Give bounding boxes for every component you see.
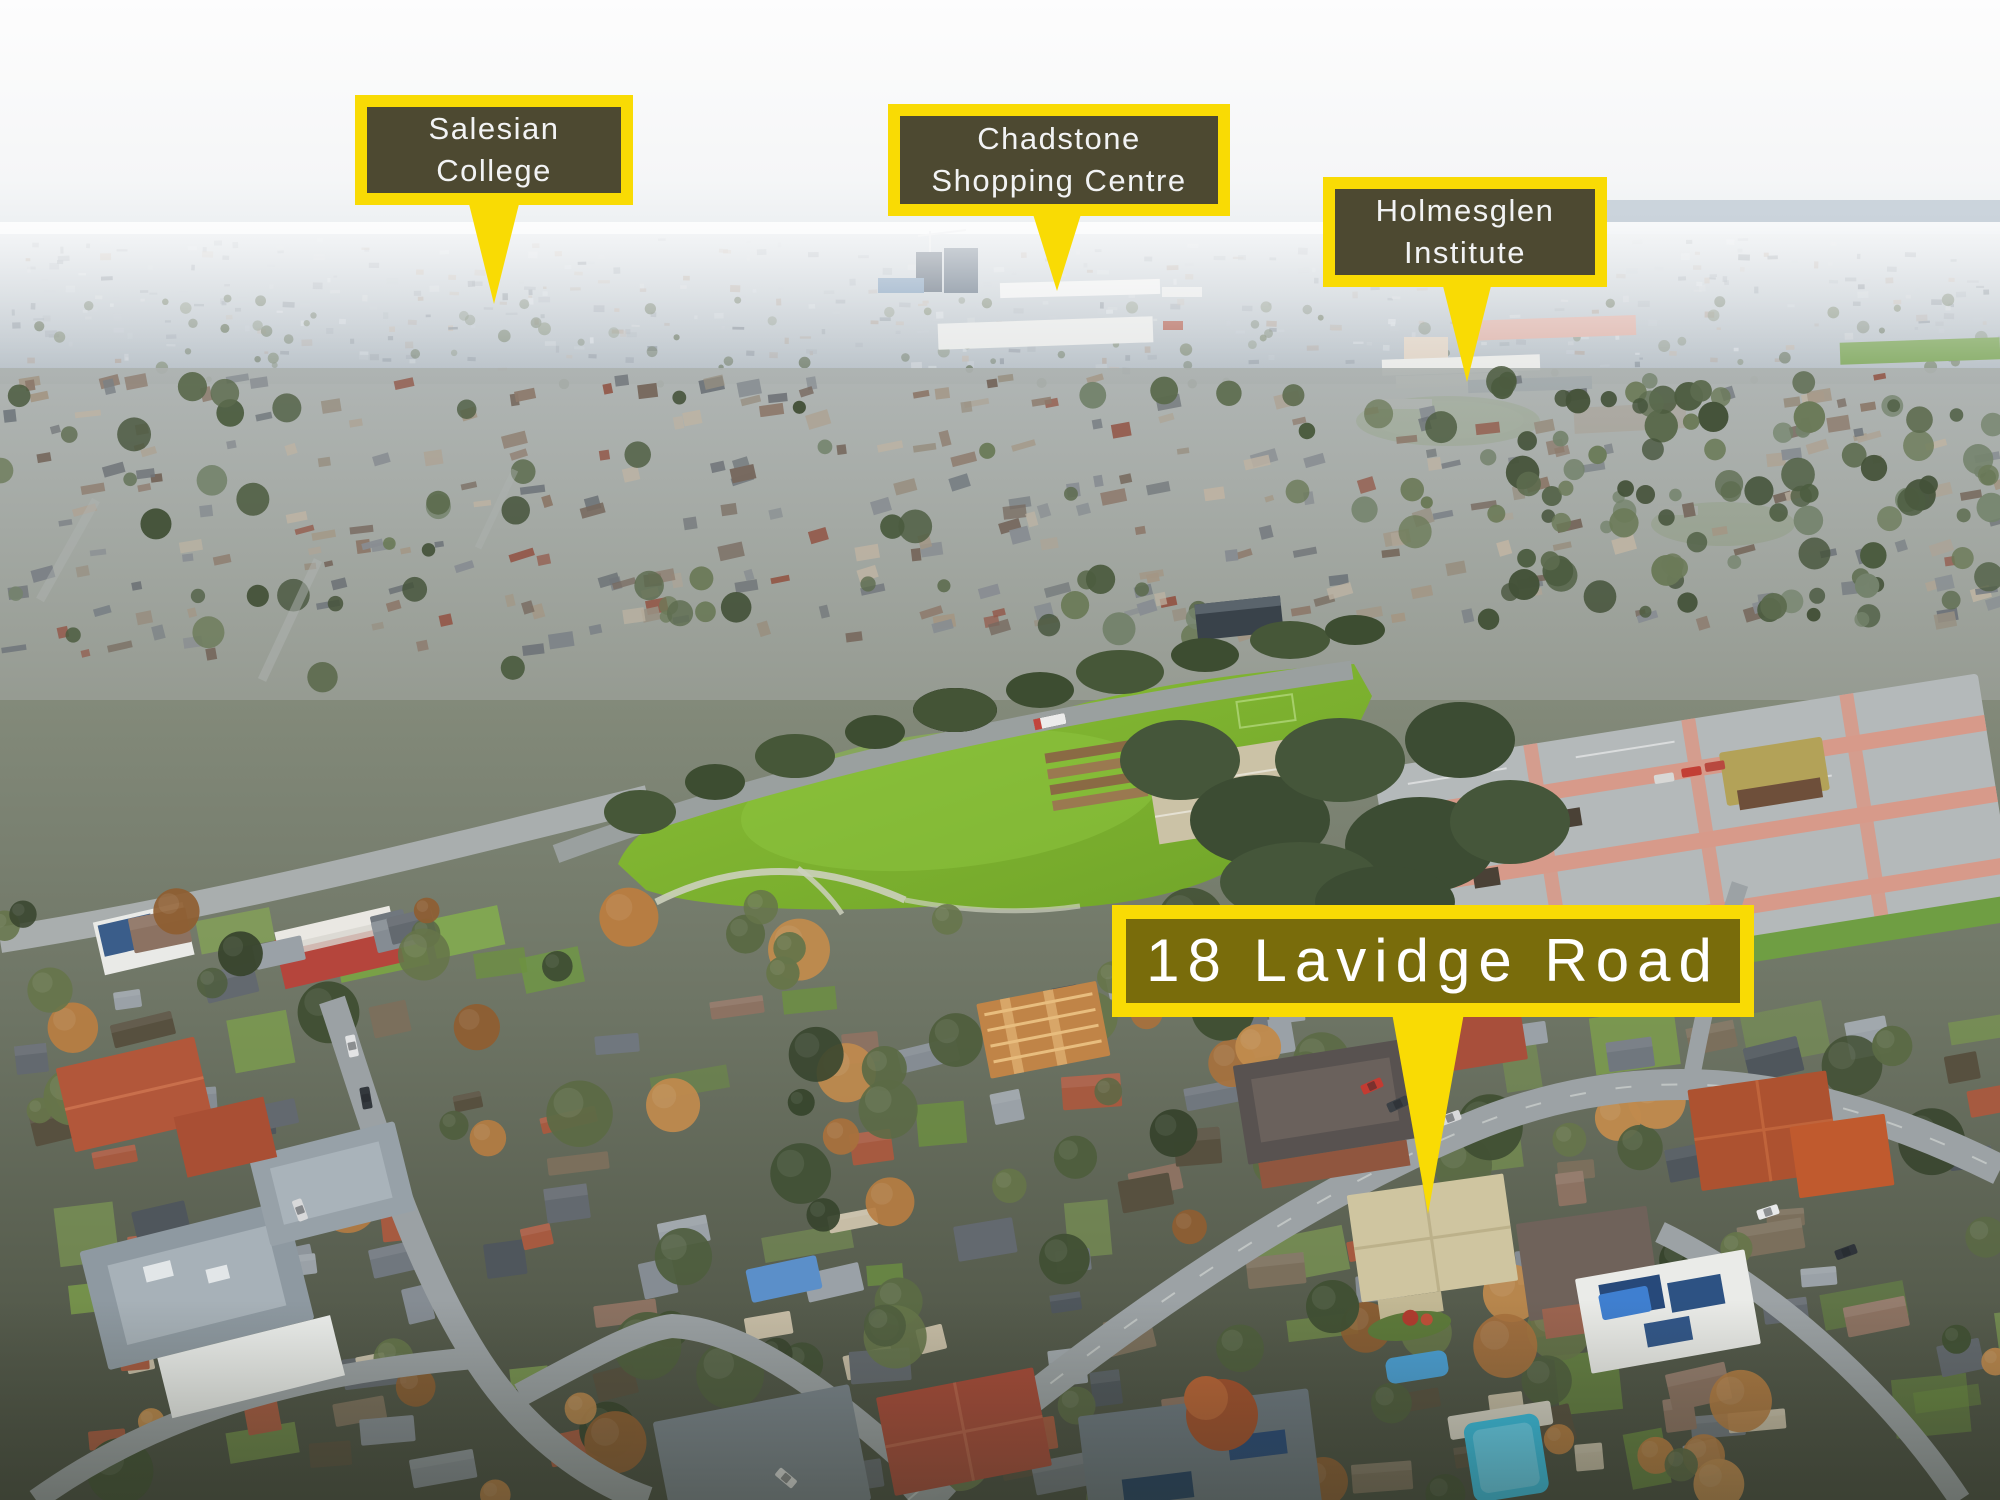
callout-text: Shopping Centre <box>931 160 1186 202</box>
callout-property-address: 18 Lavidge Road <box>1112 905 1754 1017</box>
callout-text: Chadstone <box>977 118 1140 160</box>
callout-text: Institute <box>1404 232 1526 274</box>
bottom-vignette <box>0 1300 2000 1500</box>
callout-text: Salesian <box>429 108 560 150</box>
callout-text: 18 Lavidge Road <box>1146 926 1720 996</box>
callout-text: Holmesglen <box>1376 190 1555 232</box>
aerial-scene <box>0 0 2000 1500</box>
brick-townhouses <box>1233 1039 1423 1190</box>
callout-holmesglen-institute: Holmesglen Institute <box>1323 177 1607 287</box>
callout-box: Salesian College <box>367 107 621 193</box>
callout-chadstone-shopping-centre: Chadstone Shopping Centre <box>888 104 1230 216</box>
callout-box: Holmesglen Institute <box>1335 189 1595 275</box>
aerial-photo: Salesian College Chadstone Shopping Cent… <box>0 0 2000 1500</box>
callout-box: Chadstone Shopping Centre <box>900 116 1218 204</box>
callout-box: 18 Lavidge Road <box>1126 919 1740 1003</box>
callout-salesian-college: Salesian College <box>355 95 633 205</box>
callout-text: College <box>436 150 552 192</box>
